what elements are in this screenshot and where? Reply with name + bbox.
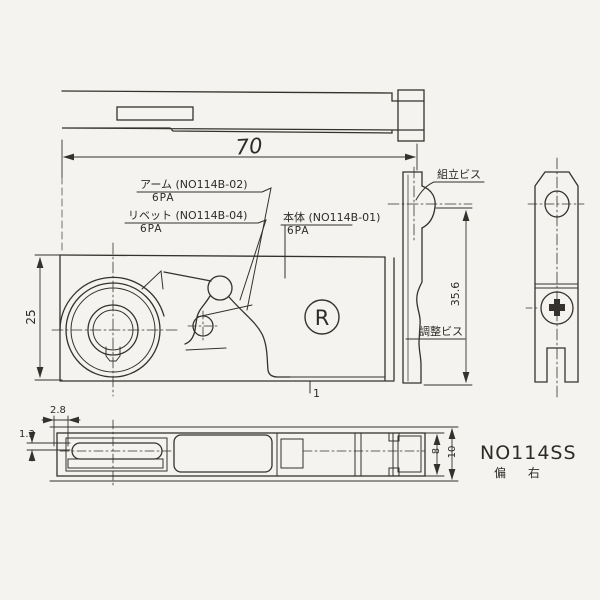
arm-band-arc [60, 277, 164, 330]
rivet-callout-qty: 6PA [140, 223, 163, 235]
top-view-end-cap [398, 90, 424, 141]
dimension-356-lines [424, 208, 472, 385]
arm-callout-qty: 6PA [152, 192, 175, 204]
body-top-edge [60, 255, 385, 257]
dimension-25-lines [35, 255, 62, 380]
front-view [35, 243, 394, 396]
assembly-screw-head [422, 186, 435, 228]
side-view [388, 167, 472, 385]
bottom-view-body [57, 433, 425, 476]
pawl-right-sweep [229, 297, 290, 377]
bottom-arm-plate [174, 435, 272, 472]
dimension-1: 1 [313, 387, 320, 400]
dimension-2-8: 2.8 [50, 405, 66, 416]
rivet-callout-label: リベット (NO114B-04) [128, 209, 247, 222]
top-view [62, 90, 424, 253]
body-callout-label: 本体 (NO114B-01) [283, 210, 380, 224]
callouts: アーム (NO114B-02) 6PA リベット (NO114B-04) 6PA… [125, 167, 484, 339]
arm-gusset [142, 271, 163, 289]
variant-note: 偏 右 [494, 465, 549, 480]
drawing-canvas: 70 アーム (NO114B-02) 6PA リベット (NO114B-04) … [0, 0, 600, 600]
assembly-screw-label: 組立ビス [437, 167, 481, 181]
dimension-25: 25 [24, 309, 38, 324]
part-number: NO114SS [480, 442, 577, 464]
roller-wheel [52, 243, 178, 396]
dimension-28-lines [42, 416, 80, 446]
top-view-bar-outline [62, 91, 398, 133]
dimension-1-3: 1.3 [19, 429, 35, 440]
title-block: NO114SS 偏 右 [480, 442, 577, 480]
bottom-roller-housing [60, 420, 172, 488]
right-hand-mark: R [315, 306, 330, 330]
top-view-slot [117, 107, 193, 120]
side-profile-bottom [403, 228, 422, 383]
adjustment-screw-label: 調整ビス [419, 324, 463, 338]
bottom-adjuster-block [303, 433, 425, 476]
arm-callout-label: アーム (NO114B-02) [140, 178, 247, 191]
body-callout-qty: 6PA [287, 225, 310, 237]
rivet-head [208, 276, 232, 300]
dimension-35-6: 35.6 [449, 282, 462, 307]
dimension-70: 70 [235, 134, 263, 160]
pawl-left-edge [185, 296, 210, 344]
end-plate-view [526, 158, 584, 397]
technical-drawing-sheet: 70 アーム (NO114B-02) 6PA リベット (NO114B-04) … [0, 0, 600, 600]
dimension-8: 8 [431, 448, 442, 454]
bottom-view [27, 416, 458, 488]
dimension-10: 10 [447, 446, 458, 459]
end-plate-outline [535, 172, 578, 382]
